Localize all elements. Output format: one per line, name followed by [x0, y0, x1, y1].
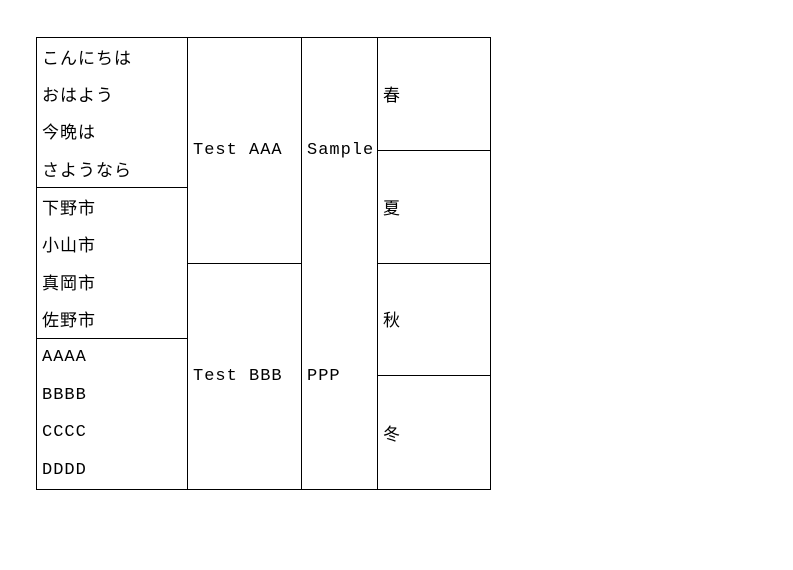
document-page: こんにちは おはよう 今晩は さようなら 下野市 小山市 真岡市 佐野市 AAA…: [0, 0, 793, 570]
table-cell-test-bbb: Test BBB: [188, 264, 302, 490]
table-cell-line: 佐野市: [37, 300, 187, 337]
table-cell-test-aaa: Test AAA: [188, 38, 302, 264]
table-cell-spring: 春: [378, 38, 490, 151]
table-cell-line: おはよう: [37, 75, 187, 112]
table-cell-line: DDDD: [37, 451, 187, 489]
table-cell-summer: 夏: [378, 151, 490, 264]
table-cell-winter: 冬: [378, 376, 490, 489]
table-cell-greetings: こんにちは おはよう 今晩は さようなら: [37, 38, 188, 188]
table-cell-line: 小山市: [37, 226, 187, 263]
table-cell-letters: AAAA BBBB CCCC DDDD: [37, 339, 188, 489]
table-cell-sample: Sample: [302, 38, 378, 264]
table-cell-line: BBBB: [37, 376, 187, 414]
table-cell-autumn: 秋: [378, 264, 490, 377]
table-cell-cities: 下野市 小山市 真岡市 佐野市: [37, 188, 188, 338]
table-cell-line: こんにちは: [37, 38, 187, 75]
table-cell-line: AAAA: [37, 339, 187, 377]
table-cell-ppp: PPP: [302, 264, 378, 490]
table-cell-line: 今晩は: [37, 113, 187, 150]
table-cell-line: 下野市: [37, 188, 187, 225]
table-cell-line: さようなら: [37, 150, 187, 187]
table-cell-line: CCCC: [37, 414, 187, 452]
table-cell-line: 真岡市: [37, 263, 187, 300]
data-table: こんにちは おはよう 今晩は さようなら 下野市 小山市 真岡市 佐野市 AAA…: [36, 37, 491, 490]
